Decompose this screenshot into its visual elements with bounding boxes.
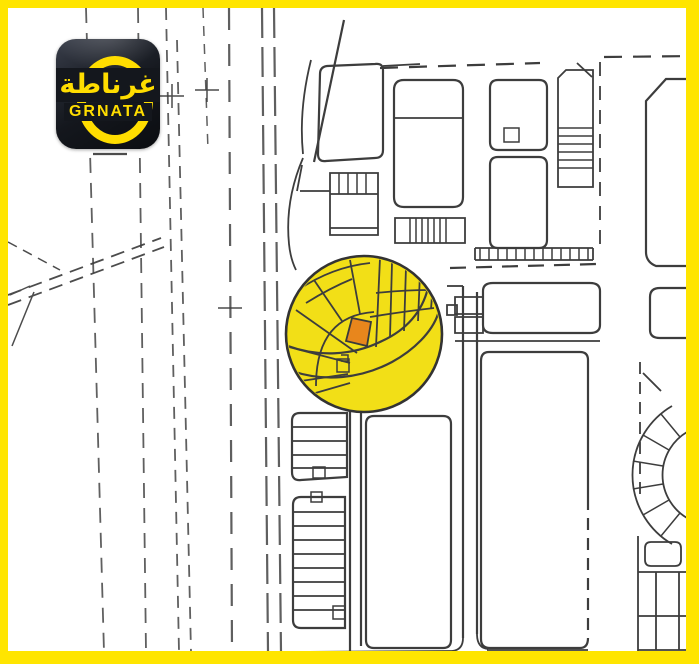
logo-latin-text: GRNATA (64, 103, 152, 121)
grnata-logo: غرناطة GRNATA (56, 39, 160, 149)
top-center-blocks (288, 20, 465, 270)
frame-left (0, 0, 8, 664)
frame-bottom (0, 651, 699, 664)
frame-right (686, 0, 699, 664)
logo-text: غرناطة GRNATA (56, 39, 160, 149)
logo-arabic-text: غرناطة (56, 68, 160, 102)
map-screenshot: غرناطة GRNATA (0, 0, 699, 664)
right-middle-blocks (447, 264, 600, 651)
highlight-circle-group (286, 256, 442, 412)
frame-top (0, 0, 699, 8)
